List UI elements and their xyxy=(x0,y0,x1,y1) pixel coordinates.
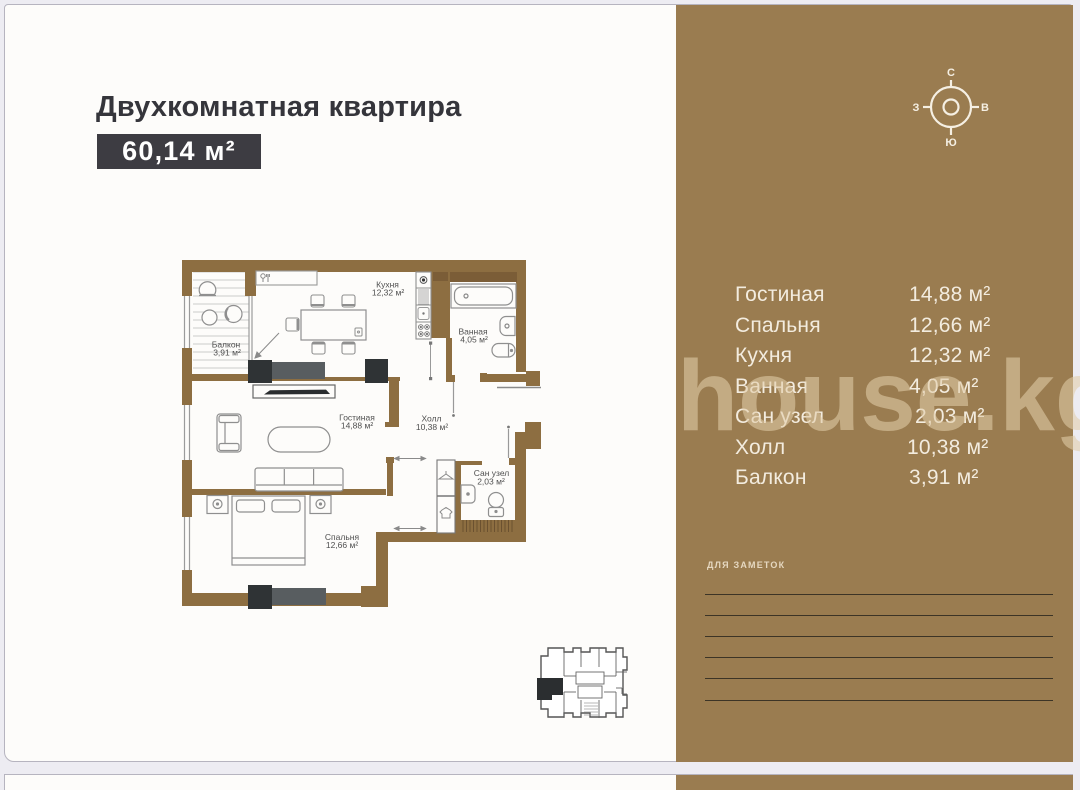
svg-text:4,05 м²: 4,05 м² xyxy=(460,335,488,345)
svg-text:12,66 м²: 12,66 м² xyxy=(326,540,358,550)
svg-text:14,88 м²: 14,88 м² xyxy=(341,421,373,431)
svg-text:С: С xyxy=(947,67,955,79)
svg-text:В: В xyxy=(981,102,989,114)
svg-text:2,03 м²: 2,03 м² xyxy=(477,477,505,487)
svg-text:10,38 м²: 10,38 м² xyxy=(416,422,448,432)
svg-text:3,91 м²: 3,91 м² xyxy=(213,348,241,358)
svg-text:Ю: Ю xyxy=(945,137,956,149)
svg-text:12,32 м²: 12,32 м² xyxy=(372,288,404,298)
svg-text:З: З xyxy=(913,102,920,114)
